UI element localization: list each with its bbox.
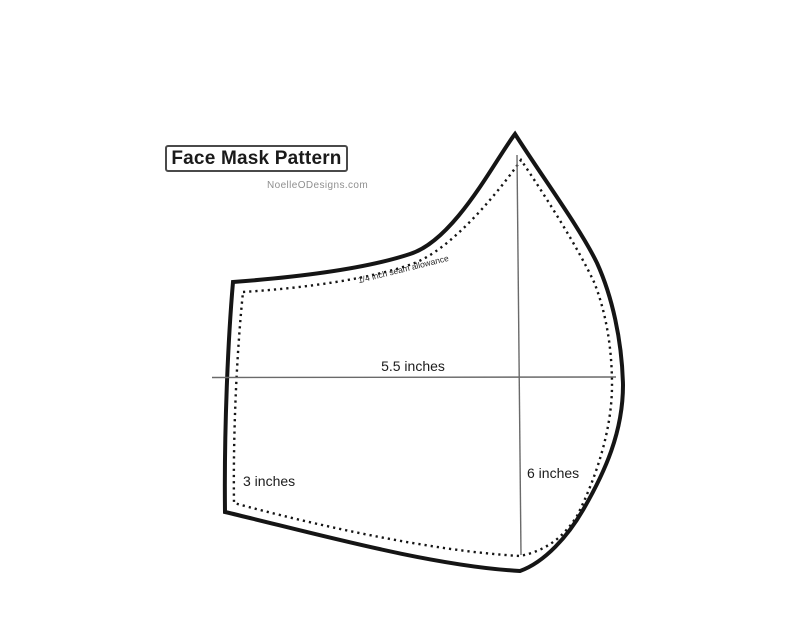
pattern-page: Face Mask Pattern NoelleODesigns.com 5.5… [0, 0, 800, 617]
mask-outline-cut-line [225, 134, 623, 571]
height-measure-label: 6 inches [527, 465, 579, 481]
width-measure-line [212, 377, 616, 378]
side-measure-label: 3 inches [243, 473, 295, 489]
face-mask-pattern-diagram: 5.5 inches 6 inches 3 inches 1/4 inch se… [0, 0, 800, 617]
width-measure-label: 5.5 inches [381, 358, 445, 374]
